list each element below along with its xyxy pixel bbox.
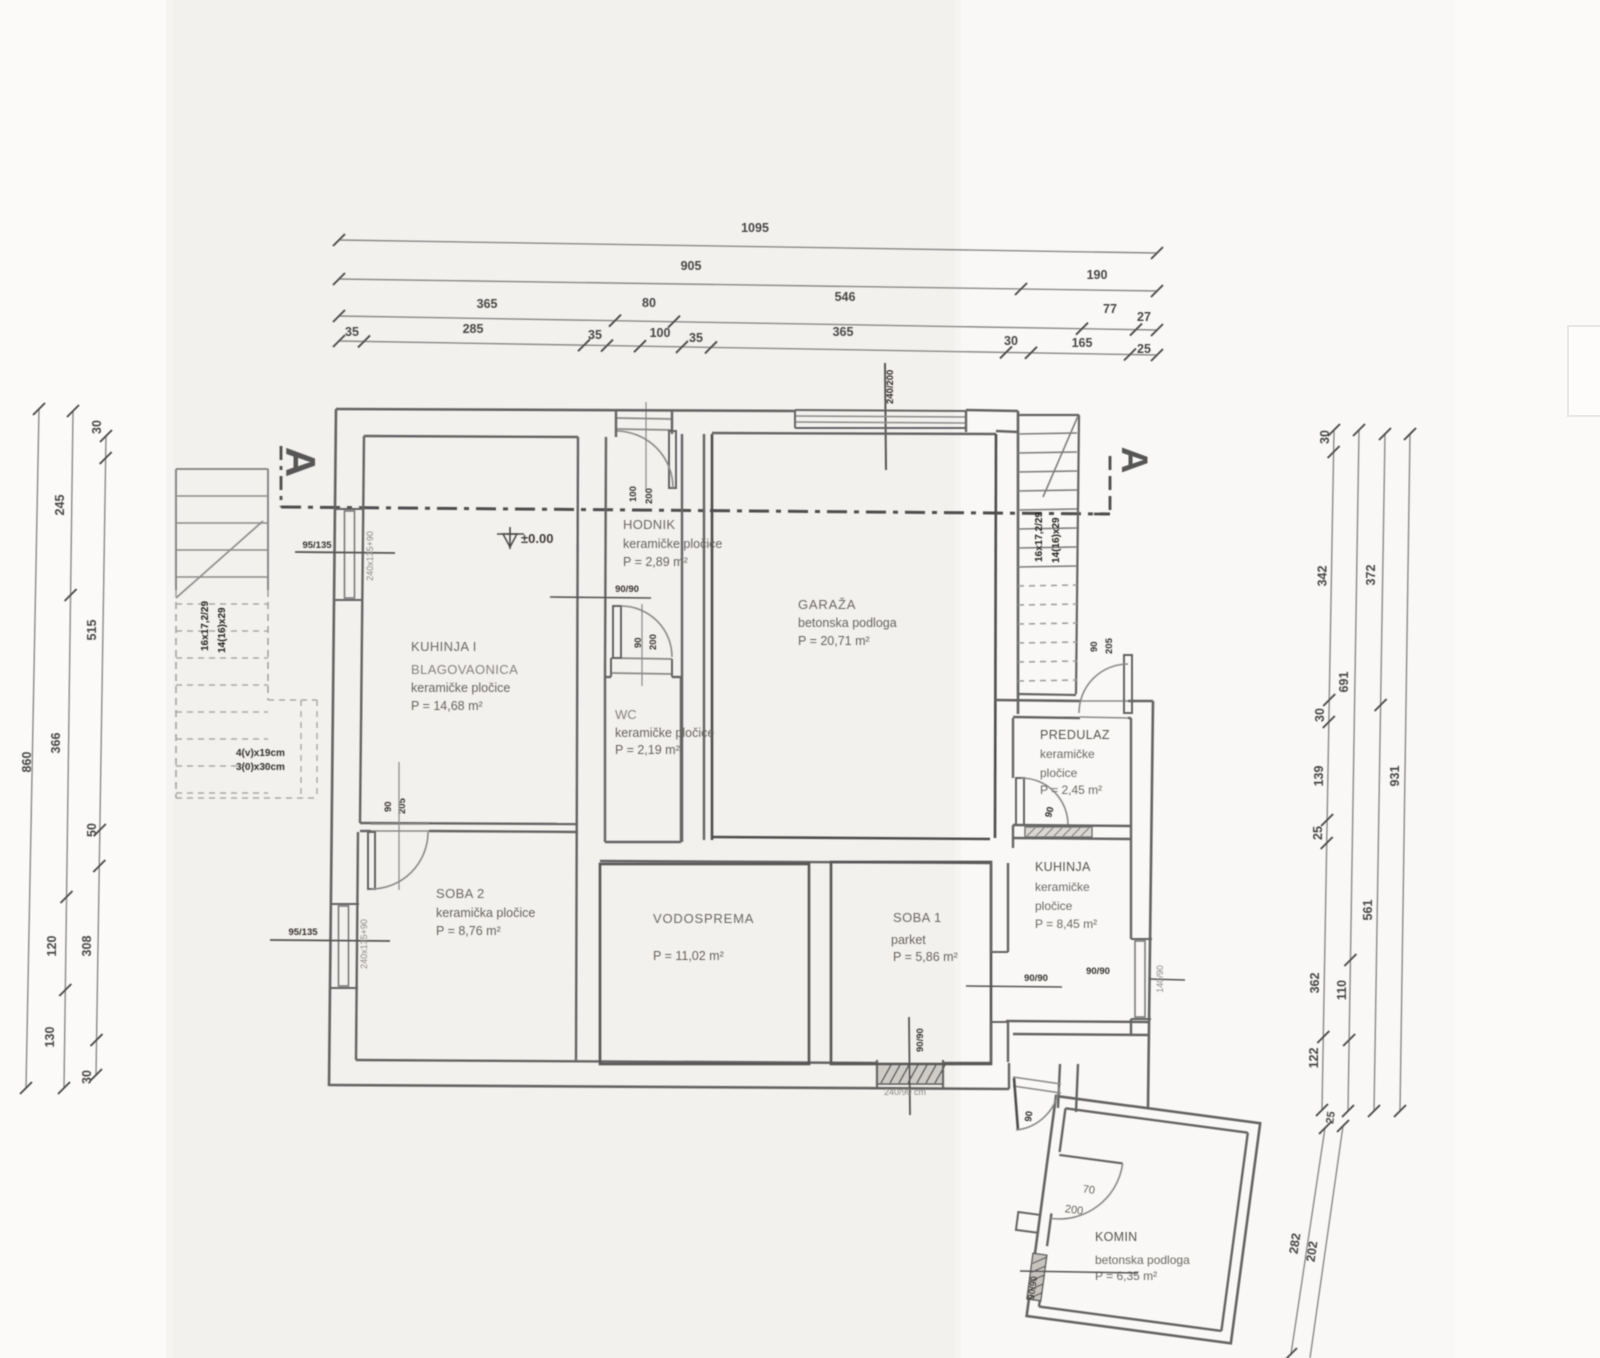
svg-text:3(0)x30cm: 3(0)x30cm	[236, 762, 285, 773]
svg-text:P = 2,19 m²: P = 2,19 m²	[615, 743, 680, 757]
svg-text:515: 515	[85, 620, 99, 641]
svg-text:4(v)x19cm: 4(v)x19cm	[236, 748, 285, 759]
svg-text:KOMIN: KOMIN	[1095, 1230, 1137, 1244]
svg-text:362: 362	[1308, 973, 1322, 994]
svg-text:parket: parket	[891, 933, 926, 947]
svg-text:P = 6,35 m²: P = 6,35 m²	[1095, 1269, 1157, 1283]
svg-text:691: 691	[1337, 672, 1351, 693]
svg-text:30: 30	[1313, 708, 1327, 722]
svg-text:P = 2,89 m²: P = 2,89 m²	[623, 555, 688, 569]
svg-text:190: 190	[1087, 268, 1108, 282]
svg-text:139: 139	[1312, 766, 1326, 787]
svg-text:P = 2,45 m²: P = 2,45 m²	[1040, 783, 1102, 797]
svg-text:90: 90	[1023, 1110, 1035, 1122]
svg-text:30: 30	[80, 1070, 94, 1084]
svg-text:P = 11,02 m²: P = 11,02 m²	[653, 949, 724, 963]
svg-text:±0.00: ±0.00	[521, 531, 553, 546]
svg-text:100: 100	[650, 326, 671, 340]
svg-text:365: 365	[477, 297, 498, 311]
svg-text:240/90 cm: 240/90 cm	[884, 1087, 926, 1097]
svg-text:HODNIK: HODNIK	[623, 517, 675, 532]
svg-text:860: 860	[20, 752, 34, 773]
svg-text:240x135+90: 240x135+90	[359, 919, 369, 969]
svg-text:betonska podloga: betonska podloga	[1095, 1253, 1190, 1267]
svg-text:90/90: 90/90	[1086, 966, 1110, 977]
svg-text:70: 70	[1082, 1183, 1096, 1197]
svg-text:27: 27	[1137, 310, 1151, 324]
svg-text:30: 30	[1004, 334, 1018, 348]
svg-text:130: 130	[43, 1027, 57, 1048]
svg-text:240/200: 240/200	[885, 370, 896, 404]
svg-text:140/90: 140/90	[1155, 965, 1165, 993]
svg-text:keramičke: keramičke	[1035, 880, 1090, 894]
svg-text:202: 202	[1304, 1240, 1321, 1263]
svg-text:35: 35	[345, 325, 359, 339]
svg-text:14(16)x29: 14(16)x29	[1051, 517, 1062, 563]
svg-text:pločice: pločice	[1035, 899, 1073, 913]
svg-text:90/90: 90/90	[1024, 973, 1048, 984]
svg-text:110: 110	[1335, 980, 1349, 1000]
svg-text:betonska podloga: betonska podloga	[798, 616, 897, 630]
svg-text:80: 80	[642, 296, 656, 310]
svg-text:100: 100	[628, 486, 639, 502]
svg-text:50: 50	[85, 823, 99, 837]
svg-text:A: A	[1114, 447, 1155, 474]
svg-text:P = 8,45 m²: P = 8,45 m²	[1035, 917, 1097, 931]
svg-text:77: 77	[1103, 302, 1117, 316]
svg-text:keramičke pločice: keramičke pločice	[615, 726, 714, 740]
svg-text:pločice: pločice	[1040, 766, 1078, 780]
svg-text:342: 342	[1315, 566, 1329, 587]
svg-text:30: 30	[90, 420, 104, 434]
svg-text:SOBA 1: SOBA 1	[893, 910, 942, 925]
svg-text:BLAGOVAONICA: BLAGOVAONICA	[411, 662, 518, 677]
svg-text:90/90: 90/90	[915, 1028, 926, 1052]
svg-text:165: 165	[1072, 336, 1093, 350]
svg-text:A: A	[277, 447, 324, 477]
svg-text:365: 365	[833, 325, 854, 339]
svg-text:120: 120	[45, 936, 59, 957]
svg-text:308: 308	[80, 936, 94, 957]
svg-text:95/135: 95/135	[302, 540, 332, 551]
svg-text:SOBA 2: SOBA 2	[436, 886, 485, 901]
svg-text:245: 245	[53, 495, 67, 516]
svg-text:GARAŽA: GARAŽA	[798, 597, 856, 612]
svg-text:122: 122	[1307, 1048, 1321, 1069]
svg-text:25: 25	[1137, 342, 1151, 356]
svg-text:282: 282	[1287, 1232, 1304, 1255]
svg-text:546: 546	[835, 290, 856, 304]
svg-text:90: 90	[1089, 641, 1100, 652]
svg-text:372: 372	[1364, 565, 1378, 586]
svg-text:25: 25	[1311, 826, 1325, 840]
svg-text:P = 5,86 m²: P = 5,86 m²	[893, 950, 958, 964]
svg-text:200: 200	[648, 634, 659, 650]
svg-text:keramičke pločice: keramičke pločice	[623, 537, 722, 551]
svg-text:16x17,2/29: 16x17,2/29	[1034, 512, 1045, 562]
svg-text:16x17,2/29: 16x17,2/29	[200, 601, 211, 651]
svg-text:200: 200	[644, 488, 655, 504]
svg-text:285: 285	[463, 322, 484, 336]
svg-text:90: 90	[383, 801, 394, 812]
svg-text:25: 25	[1324, 1111, 1338, 1125]
svg-text:931: 931	[1388, 766, 1402, 787]
svg-text:90/90: 90/90	[615, 584, 639, 595]
svg-text:205: 205	[1104, 637, 1115, 654]
svg-text:905: 905	[681, 259, 702, 273]
svg-text:14(16)x29: 14(16)x29	[217, 607, 228, 653]
svg-text:30: 30	[1318, 430, 1332, 444]
svg-text:95/135: 95/135	[288, 927, 318, 938]
svg-text:35: 35	[689, 331, 703, 345]
svg-text:KUHINJA: KUHINJA	[1035, 860, 1091, 874]
svg-text:35: 35	[588, 328, 602, 342]
svg-text:366: 366	[49, 733, 63, 754]
svg-text:keramičke pločice: keramičke pločice	[411, 681, 510, 695]
svg-text:561: 561	[1361, 900, 1375, 921]
svg-text:P = 14,68 m²: P = 14,68 m²	[411, 699, 483, 713]
svg-text:1095: 1095	[741, 221, 769, 235]
svg-text:KUHINJA I: KUHINJA I	[411, 639, 477, 654]
svg-text:P = 8,76 m²: P = 8,76 m²	[436, 924, 501, 938]
svg-text:200: 200	[1064, 1203, 1084, 1217]
svg-text:keramička pločice: keramička pločice	[436, 906, 535, 920]
svg-text:keramičke: keramičke	[1040, 747, 1095, 761]
svg-text:WC: WC	[615, 707, 637, 722]
svg-text:240x135+90: 240x135+90	[365, 531, 375, 581]
svg-text:PREDULAZ: PREDULAZ	[1040, 728, 1110, 742]
svg-text:P = 20,71 m²: P = 20,71 m²	[798, 634, 870, 648]
svg-text:VODOSPREMA: VODOSPREMA	[653, 911, 754, 926]
